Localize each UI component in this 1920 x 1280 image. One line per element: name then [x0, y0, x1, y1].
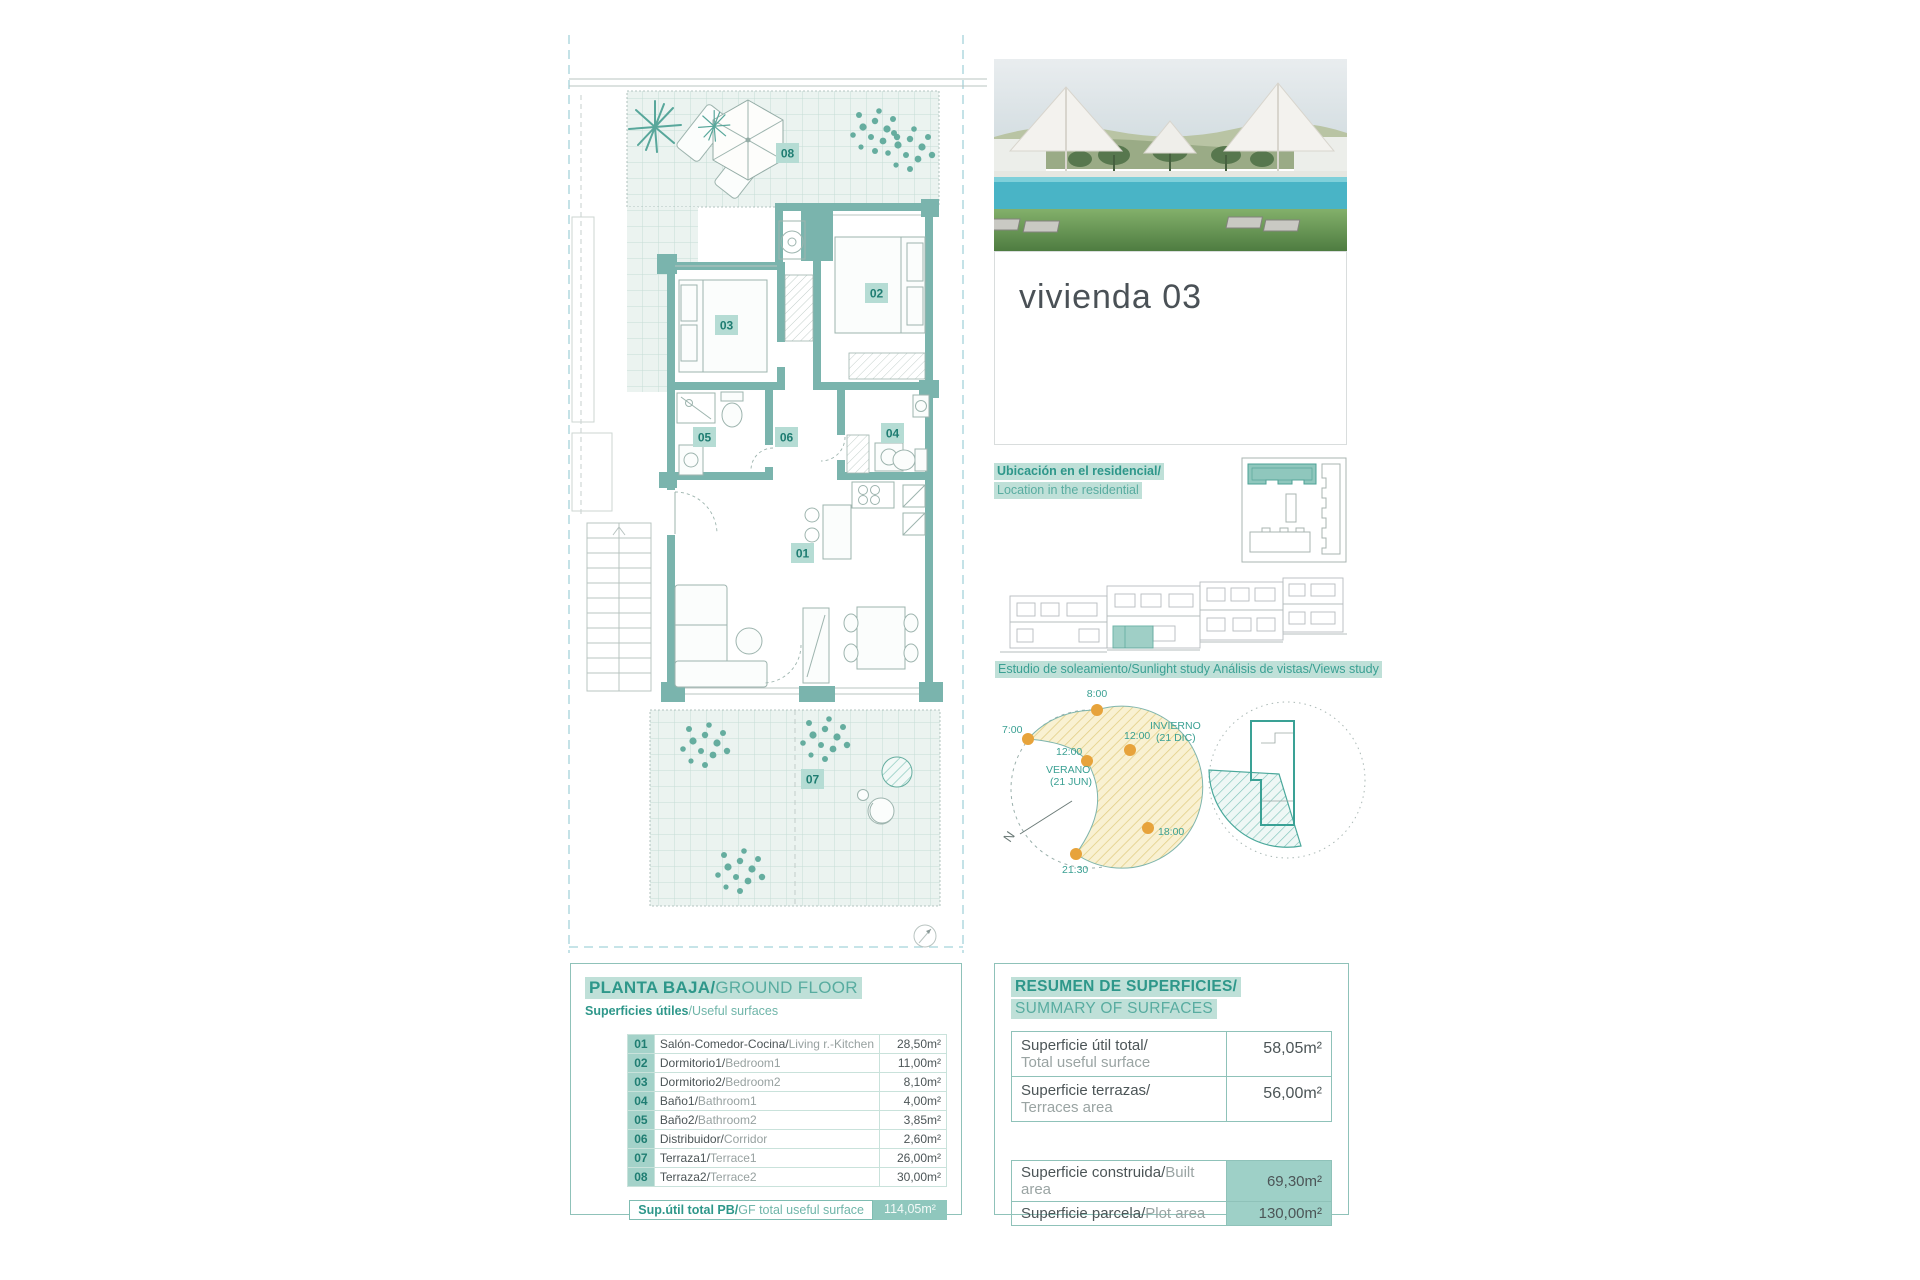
hero-photo [994, 59, 1347, 251]
sun-label-1200-summer: 12:00 [1056, 746, 1082, 758]
communal-staircase [587, 523, 651, 691]
living-kitchen: 01 [675, 482, 925, 687]
summary-title-en: SUMMARY OF SURFACES [1015, 1000, 1213, 1017]
total-value: 114,05m² [873, 1200, 947, 1220]
table-row: 06Distribuidor/Corridor2,60m² [627, 1130, 946, 1149]
table-row: Superficie parcela/Plot area 130,00m² [1012, 1202, 1332, 1226]
site-plan [1232, 450, 1357, 575]
panel-title-en: GROUND FLOOR [715, 978, 857, 997]
bathroom-2: 05 [677, 392, 773, 475]
sun-label-1200-winter: 12:00 [1124, 730, 1150, 742]
panel-subtitle: Superficies útiles/Useful surfaces [585, 1004, 947, 1018]
sun-label-verano: VERANO [1046, 764, 1090, 776]
compass-icon [914, 925, 936, 947]
room-label-04: 04 [886, 427, 900, 441]
room-label-05: 05 [698, 431, 712, 445]
site-block-highlight [1248, 464, 1316, 484]
table-row: 02Dormitorio1/Bedroom111,00m² [627, 1054, 946, 1073]
sun-label-invierno: INVIERNO [1150, 720, 1201, 732]
views-study-diagram [1205, 688, 1370, 883]
ground-floor-panel: PLANTA BAJA/GROUND FLOOR Superficies úti… [570, 963, 962, 1215]
sunlight-study-diagram: 8:00 7:00 12:00 INVIERNO (21 DIC) 12:00 … [998, 683, 1208, 898]
sun-label-1800: 18:00 [1158, 826, 1184, 838]
sun-label-2130: 21:30 [1062, 864, 1088, 876]
location-label: Ubicación en el residencial/ Location in… [994, 462, 1164, 499]
room-label-07: 07 [806, 773, 820, 787]
table-row: 04Baño1/Bathroom14,00m² [627, 1092, 946, 1111]
closet [785, 275, 813, 341]
residential-elevation [995, 572, 1350, 660]
unit-highlight [1113, 626, 1153, 648]
location-label-es: Ubicación en el residencial/ [997, 464, 1161, 478]
views-study-title: Análisis de vistas/Views study [1210, 660, 1382, 678]
table-row: 03Dormitorio2/Bedroom28,10m² [627, 1073, 946, 1092]
bedroom-1: 02 [835, 237, 925, 379]
table-row: 08Terraza2/Terrace230,00m² [627, 1168, 946, 1187]
views-wedge [1209, 770, 1301, 847]
bedroom-2: 03 [679, 280, 767, 372]
summary-title-es: RESUMEN DE SUPERFICIES/ [1015, 978, 1237, 995]
summary-table-top: Superficie útil total/Total useful surfa… [1011, 1031, 1332, 1122]
surfaces-summary-panel: RESUMEN DE SUPERFICIES/ SUMMARY OF SURFA… [994, 963, 1349, 1215]
room-label-03: 03 [720, 319, 734, 333]
sun-label-invierno-date: (21 DIC) [1156, 732, 1196, 744]
table-row: 01Salón-Comedor-Cocina/Living r.-Kitchen… [627, 1035, 946, 1054]
floor-plan: 08 [563, 35, 993, 970]
page-title: vivienda 03 [995, 252, 1346, 317]
north-label: N [1000, 828, 1018, 844]
sunlight-study-title: Estudio de soleamiento/Sunlight study [995, 660, 1213, 678]
room-label-01: 01 [796, 547, 810, 561]
terrace-1: 07 [650, 710, 940, 906]
summary-table-bottom: Superficie construida/Built area 69,30m²… [1011, 1160, 1332, 1226]
room-label-02: 02 [870, 287, 884, 301]
table-row: Superficie terrazas/Terraces area 56,00m… [1012, 1077, 1332, 1122]
neighbour-outline [572, 217, 594, 422]
sun-label-0800: 8:00 [1087, 688, 1108, 700]
bathroom-1: 04 [847, 395, 929, 473]
corridor: 06 [775, 427, 845, 461]
floor-plan-svg: 08 [563, 35, 993, 970]
room-surfaces-table: 01Salón-Comedor-Cocina/Living r.-Kitchen… [627, 1034, 947, 1187]
table-row: 07Terraza1/Terrace126,00m² [627, 1149, 946, 1168]
pool-render-image [994, 59, 1347, 251]
table-row: Superficie construida/Built area 69,30m² [1012, 1161, 1332, 1202]
sun-label-verano-date: (21 JUN) [1050, 776, 1092, 788]
panel-title-es: PLANTA BAJA/ [589, 978, 715, 997]
sun-label-0700: 7:00 [1002, 724, 1023, 736]
title-box: vivienda 03 [994, 251, 1347, 445]
total-row: Sup.útil total PB/GF total useful surfac… [585, 1200, 947, 1220]
panel-title: PLANTA BAJA/GROUND FLOOR [585, 977, 862, 999]
table-row: 05Baño2/Bathroom23,85m² [627, 1111, 946, 1130]
location-label-en: Location in the residential [997, 483, 1139, 497]
room-label-08: 08 [781, 147, 795, 161]
table-row: Superficie útil total/Total useful surfa… [1012, 1032, 1332, 1077]
room-label-06: 06 [780, 431, 794, 445]
